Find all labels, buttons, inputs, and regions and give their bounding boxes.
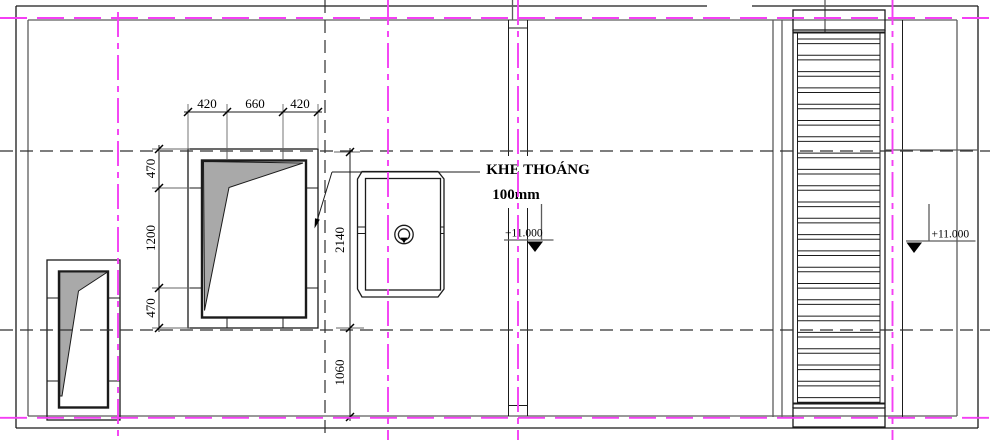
paper-background [0,0,990,440]
vent-gap-label: KHE THOÁNG [486,161,590,178]
dim-value: 420 [290,96,310,111]
dim-value: 660 [245,96,265,111]
plan-canvas: 420 660 420 470 1200 470 2140 1060 KHE T… [0,0,990,440]
dim-value: 1200 [143,225,158,251]
dim-value: 470 [143,159,158,179]
dim-value: 1060 [332,360,347,386]
dim-value: 2140 [332,227,347,253]
dim-value: 470 [143,298,158,318]
floor-plan-drawing: 420 660 420 470 1200 470 2140 1060 KHE T… [0,0,990,440]
elevation-value: +11.000 [505,228,543,240]
elevation-value: +11.000 [932,229,970,241]
vent-gap-size: 100mm [492,187,540,203]
dim-value: 420 [197,96,217,111]
